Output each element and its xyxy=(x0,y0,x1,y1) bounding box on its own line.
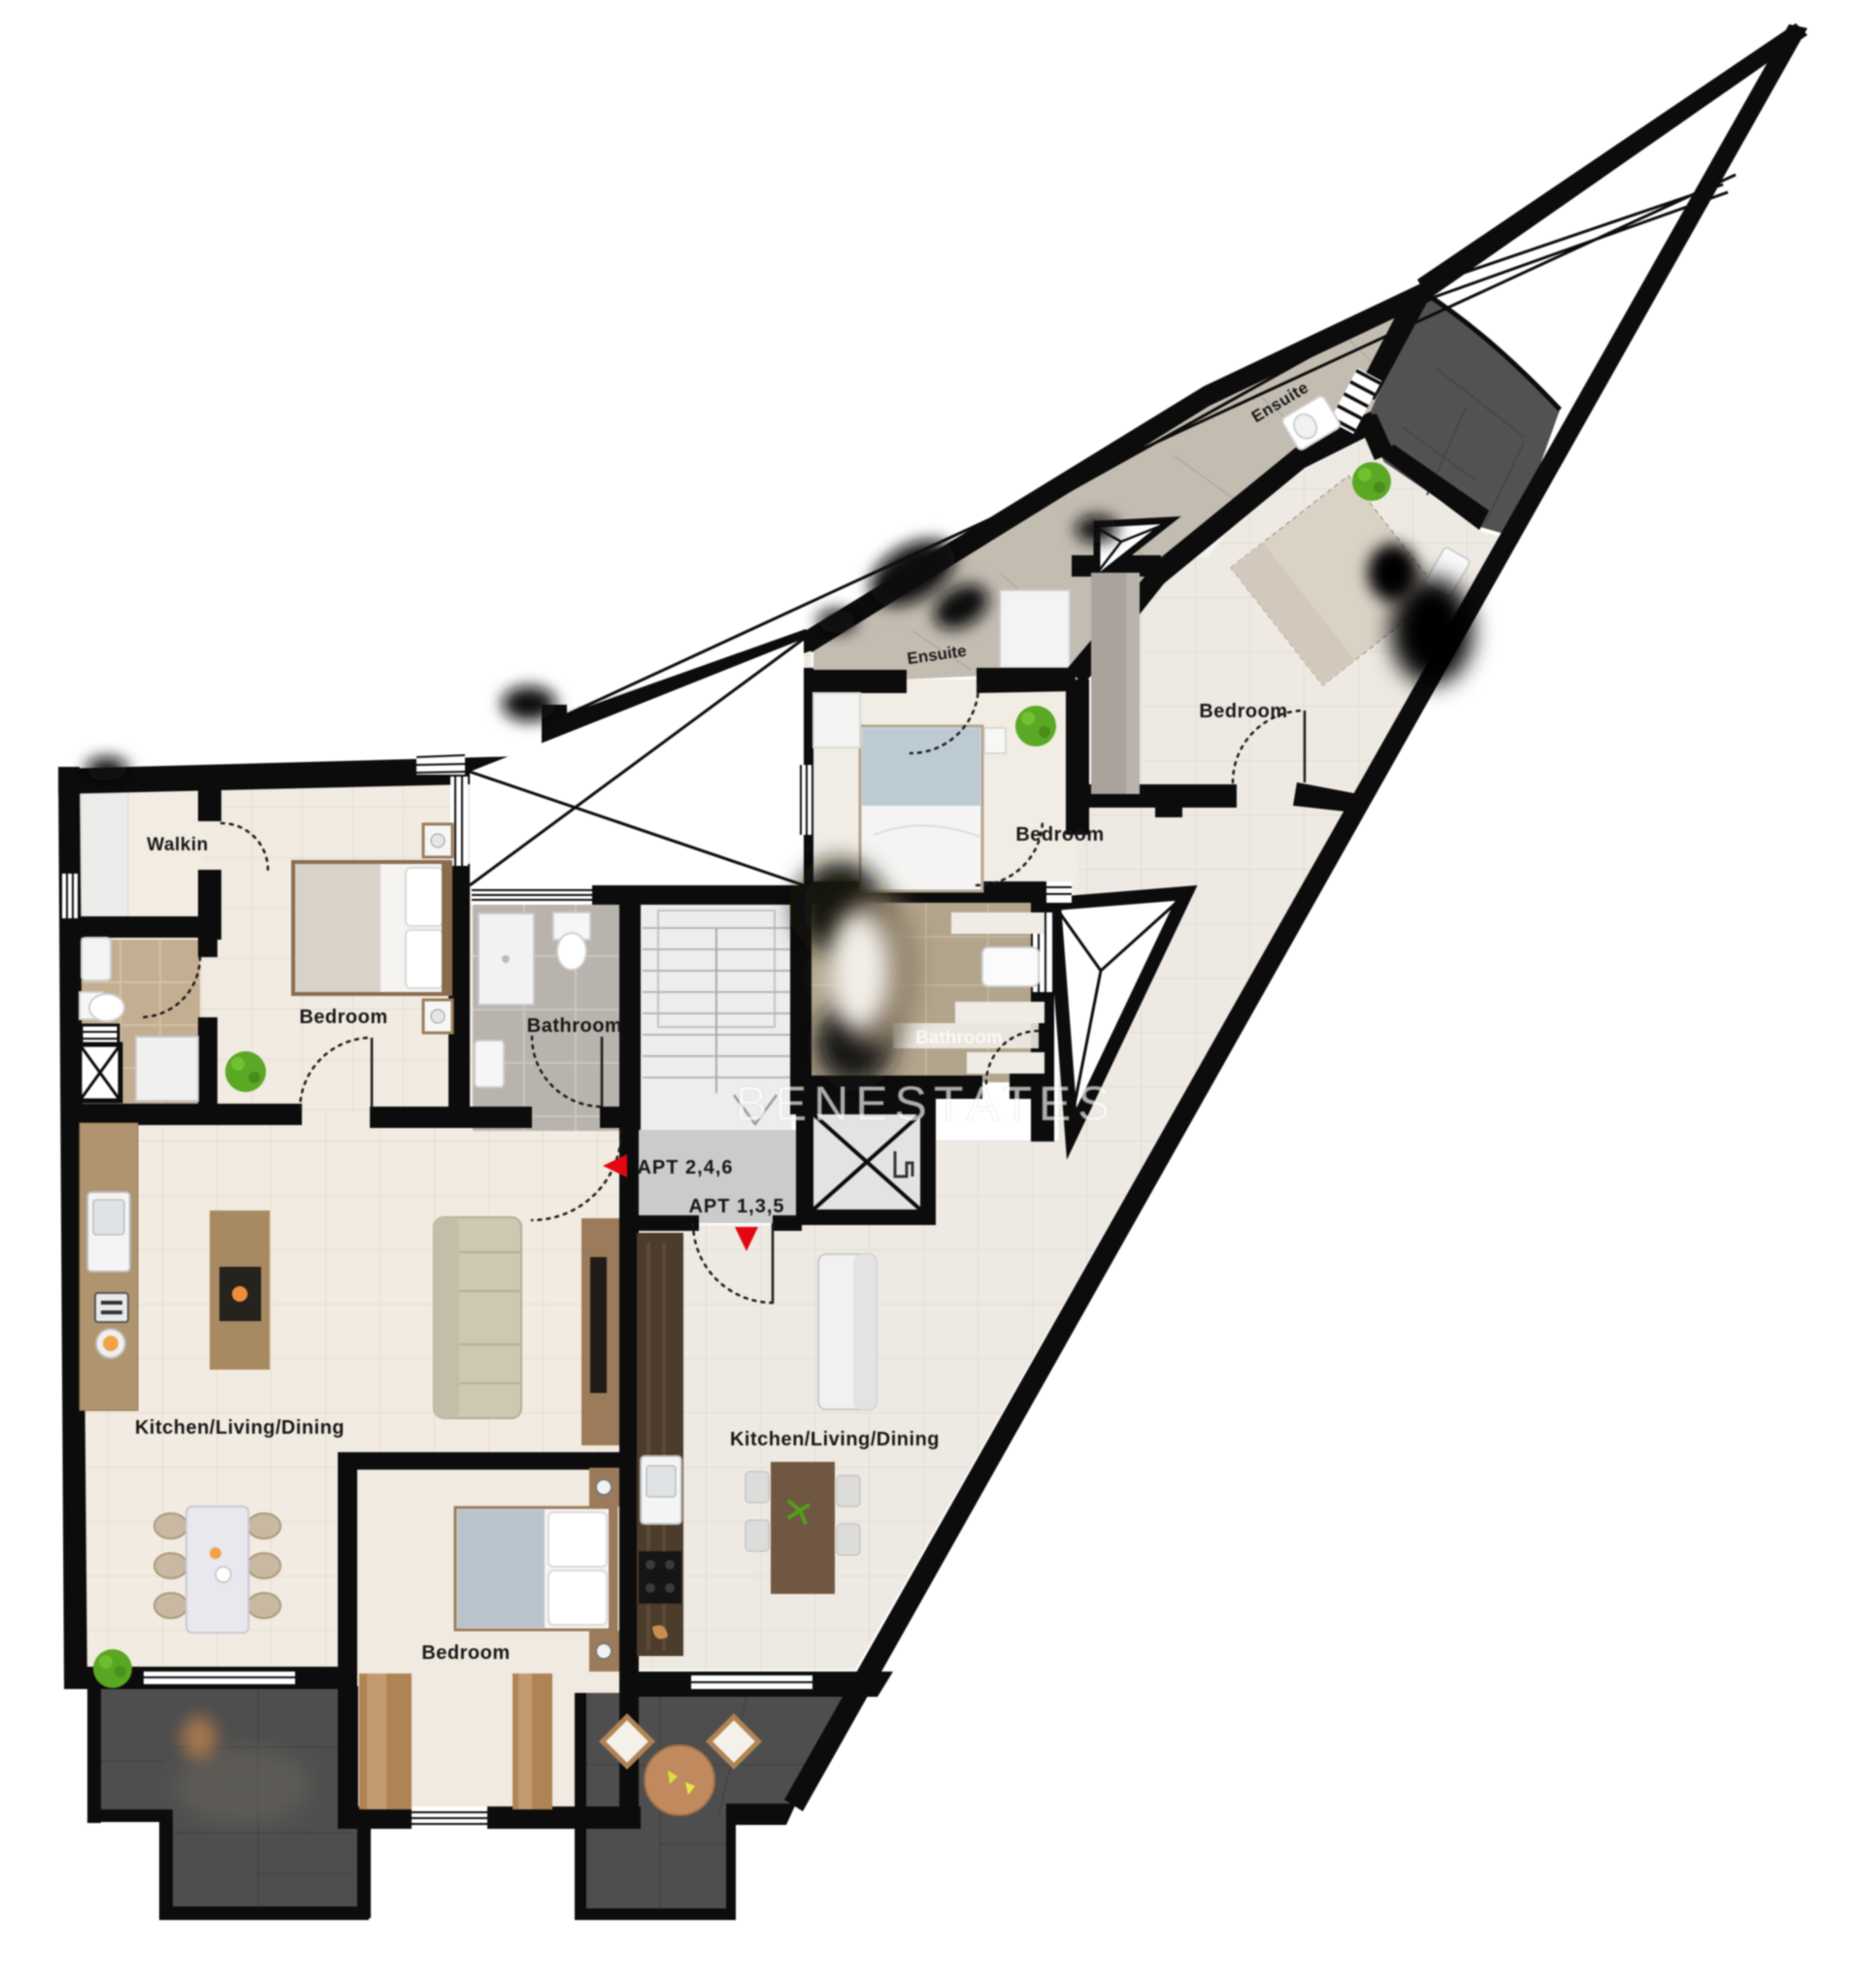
svg-text:Walkin: Walkin xyxy=(147,835,209,855)
svg-text:Bedroom: Bedroom xyxy=(299,1007,387,1028)
svg-text:BENESTATES: BENESTATES xyxy=(735,1077,1116,1131)
svg-text:Bathroom: Bathroom xyxy=(915,1028,1003,1048)
svg-text:APT 1,3,5: APT 1,3,5 xyxy=(688,1196,784,1217)
svg-text:Bathroom: Bathroom xyxy=(527,1015,622,1037)
svg-text:Kitchen/Living/Dining: Kitchen/Living/Dining xyxy=(730,1429,940,1450)
svg-text:Bedroom: Bedroom xyxy=(1015,824,1104,845)
svg-text:APT 2,4,6: APT 2,4,6 xyxy=(637,1157,733,1178)
svg-text:Bedroom: Bedroom xyxy=(421,1642,510,1664)
svg-text:Bedroom: Bedroom xyxy=(1199,701,1287,722)
svg-text:Kitchen/Living/Dining: Kitchen/Living/Dining xyxy=(135,1417,345,1439)
